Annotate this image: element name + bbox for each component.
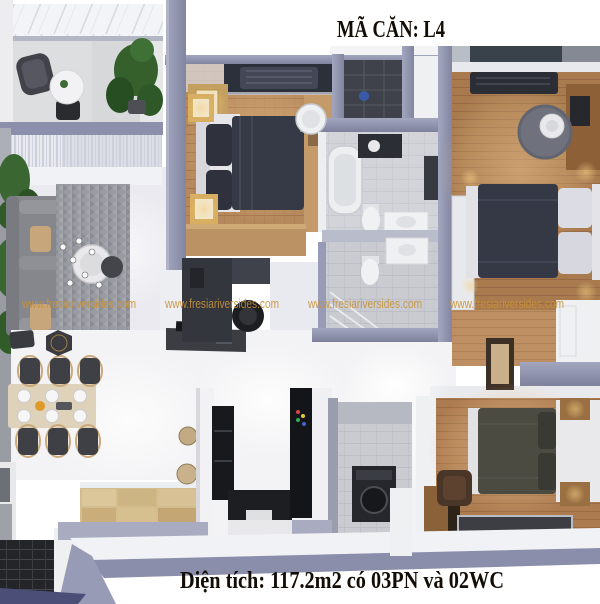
svg-text:www.fresiariversides.com: www.fresiariversides.com	[164, 297, 279, 311]
svg-text:www.fresiariversides.com: www.fresiariversides.com	[21, 297, 136, 311]
svg-text:MÃ CĂN: L4: MÃ CĂN: L4	[337, 16, 445, 43]
svg-text:www.fresiariversides.com: www.fresiariversides.com	[449, 297, 564, 311]
svg-text:Diện tích: 117.2m2 có 03PN và: Diện tích: 117.2m2 có 03PN và 02WC	[180, 568, 504, 594]
svg-text:www.fresiariversides.com: www.fresiariversides.com	[307, 297, 422, 311]
